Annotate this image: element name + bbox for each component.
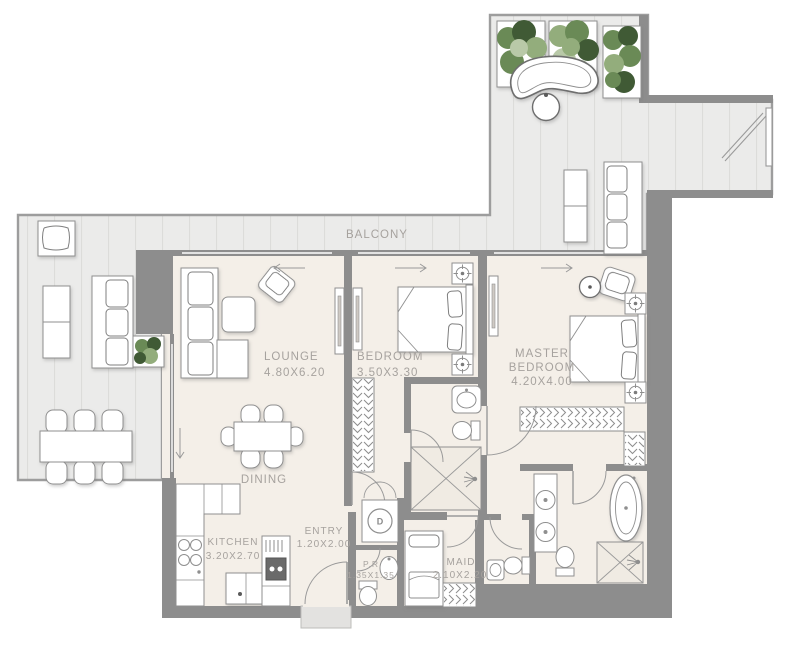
floor-plan: D xyxy=(0,0,801,640)
master-bedroom-label-2: BEDROOM xyxy=(509,362,575,374)
lounge-coffee-table xyxy=(222,297,255,332)
lounge-tv-unit xyxy=(335,288,344,354)
master-bath-vanity xyxy=(534,474,557,552)
master-bath-tub xyxy=(610,475,642,541)
bedroom-bath-toilet xyxy=(453,421,481,440)
master-bath-toilet xyxy=(556,547,574,577)
terrace-planter-3 xyxy=(603,26,641,98)
master-bath-shower xyxy=(597,542,643,583)
bedroom-bed xyxy=(398,285,473,354)
master-tv-unit xyxy=(489,276,498,336)
floor-plan-svg: D xyxy=(0,0,801,640)
maid-wardrobe xyxy=(443,583,476,607)
maid-bath-toilet xyxy=(504,557,530,574)
left-balcony-armchair xyxy=(38,221,75,256)
entry-label: ENTRY xyxy=(305,526,344,537)
entry-threshold xyxy=(301,600,351,628)
right-balcony-sofa xyxy=(604,162,642,254)
bedroom-label: BEDROOM xyxy=(357,351,423,363)
pr-toilet xyxy=(359,581,377,606)
dining-label: DINING xyxy=(241,474,287,486)
lounge-label: LOUNGE xyxy=(264,351,319,363)
master-nightstand-bottom xyxy=(625,382,646,403)
lounge-dimensions: 4.80X6.20 xyxy=(264,367,325,379)
maid-dimensions: 2.10X2.20 xyxy=(433,570,488,581)
kitchen-tall-unit xyxy=(262,536,290,606)
kitchen-dimensions: 3.20X2.70 xyxy=(206,551,261,562)
master-bedroom-label-1: MASTER xyxy=(515,348,569,360)
maid-bed xyxy=(405,531,443,606)
bedroom-tv-unit xyxy=(353,288,362,350)
bedroom-bath-sink xyxy=(452,386,481,413)
terrace-round-table xyxy=(533,93,560,121)
kitchen-label: KITCHEN xyxy=(208,537,259,548)
outdoor-dining-set xyxy=(40,410,132,484)
master-bed xyxy=(570,314,645,384)
maid-label: MAID xyxy=(447,557,476,568)
pr-label: P.R xyxy=(363,559,379,569)
balcony-label: BALCONY xyxy=(346,229,408,241)
master-bedroom-dimensions: 4.20X4.00 xyxy=(511,376,572,388)
bedroom-nightstand-bottom xyxy=(452,354,473,375)
left-balcony-coffee-table xyxy=(43,286,70,358)
bedroom-dimensions: 3.50X3.30 xyxy=(357,367,418,379)
bedroom-wardrobe xyxy=(352,378,374,472)
bedroom-bath-shower xyxy=(411,447,481,510)
dryer-label: D xyxy=(377,517,384,527)
master-side-table xyxy=(580,277,601,298)
master-nightstand-top xyxy=(625,293,646,314)
pr-dimensions: 1.35X1.35 xyxy=(347,570,395,580)
entry-dimensions: 1.20X2.00 xyxy=(297,539,352,550)
master-wardrobe-side xyxy=(624,432,645,466)
left-balcony-sofa xyxy=(92,276,133,368)
kitchen-island xyxy=(226,573,265,604)
maid-bath-sink xyxy=(487,560,504,580)
bedroom-nightstand-top xyxy=(452,263,473,284)
left-balcony-planter xyxy=(133,336,164,367)
right-balcony-coffee-table xyxy=(564,170,587,242)
